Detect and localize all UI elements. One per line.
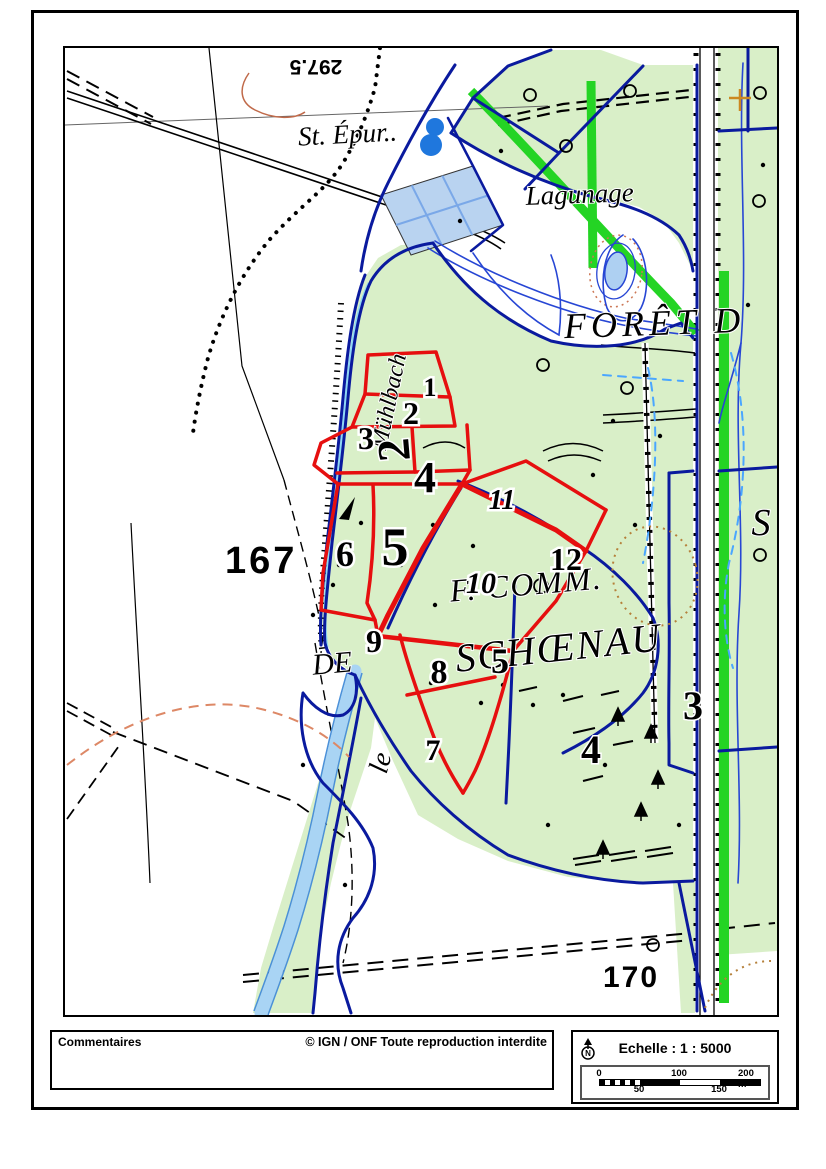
copyright-notice: © IGN / ONF Toute reproduction interdite [305, 1035, 547, 1049]
parcel-number-8: 8 [431, 654, 448, 691]
map-canvas: St. Épur.. Lagunage FORÊT D F. COMM. DE … [65, 48, 777, 1015]
compartment-2: 2 [367, 436, 420, 463]
label-de: DE [310, 645, 354, 681]
map-frame: St. Épur.. Lagunage FORÊT D F. COMM. DE … [63, 46, 779, 1017]
parcel-number-2: 2 [403, 395, 419, 431]
parcel-number-5: 5 [382, 517, 409, 577]
scale-bar-segments [599, 1079, 761, 1086]
comments-label: Commentaires [58, 1035, 141, 1049]
parcel-number-9: 9 [366, 623, 382, 659]
comments-box[interactable]: Commentaires © IGN / ONF Toute reproduct… [50, 1030, 554, 1090]
contour-label-297: 297.5 [289, 55, 342, 78]
compartment-3: 3 [683, 683, 703, 728]
print-sheet: St. Épur.. Lagunage FORÊT D F. COMM. DE … [31, 10, 799, 1110]
label-st-epur: St. Épur.. [297, 116, 397, 151]
parcel-number-1: 1 [424, 373, 437, 402]
scale-title: Echelle : 1 : 5000 [573, 1040, 777, 1056]
compartment-4: 4 [581, 727, 601, 772]
compartment-5: 5 [491, 641, 509, 681]
label-s-cut: S [752, 502, 771, 544]
parcel-number-6: 6 [336, 534, 354, 574]
parcel-number-12: 12 [550, 541, 582, 577]
parcel-number-10: 10 [466, 567, 496, 600]
label-foret: FORÊT D [562, 300, 746, 346]
avenue-road [696, 48, 718, 1015]
label-lagunage: Lagunage [524, 177, 634, 211]
parcel-number-7: 7 [426, 734, 441, 767]
spot-height-167: 167 [225, 540, 297, 582]
parcel-number-11: 11 [489, 485, 515, 516]
scale-tick-100: 100 [671, 1068, 687, 1079]
scale-tick-0: 0 [596, 1068, 601, 1079]
map-print-page: { "footer": { "comments_label": "Comment… [0, 0, 826, 1169]
spot-height-170: 170 [603, 961, 659, 994]
scale-bar: 0 100 200 m 50 150 [580, 1065, 770, 1100]
parcel-number-3: 3 [358, 420, 374, 456]
scale-box: N Echelle : 1 : 5000 0 100 200 m 50 150 [571, 1030, 779, 1104]
parcel-number-4: 4 [414, 453, 436, 502]
